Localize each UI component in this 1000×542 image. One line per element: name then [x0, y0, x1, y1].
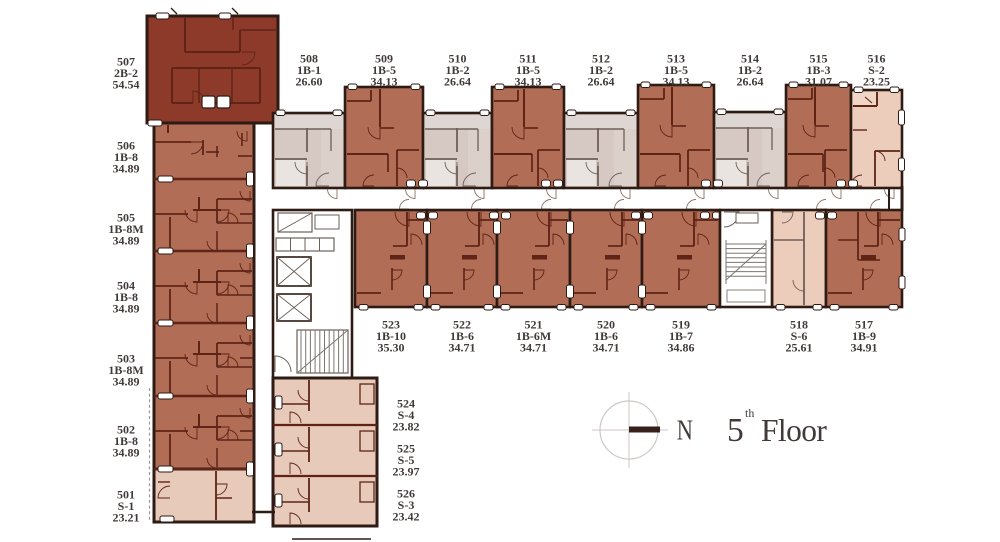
- svg-text:34.89: 34.89: [113, 162, 140, 176]
- svg-text:34.13: 34.13: [371, 75, 398, 89]
- svg-text:5: 5: [727, 412, 744, 449]
- svg-text:N: N: [677, 415, 693, 446]
- svg-text:31.07: 31.07: [805, 75, 832, 89]
- svg-text:23.97: 23.97: [393, 465, 420, 479]
- svg-text:23.25: 23.25: [863, 75, 890, 89]
- svg-text:35.30: 35.30: [378, 341, 405, 355]
- svg-text:34.89: 34.89: [113, 446, 140, 460]
- svg-text:34.13: 34.13: [663, 75, 690, 89]
- svg-text:34.86: 34.86: [668, 341, 695, 355]
- svg-text:26.64: 26.64: [737, 75, 764, 89]
- svg-text:26.60: 26.60: [296, 75, 323, 89]
- svg-text:34.71: 34.71: [449, 341, 476, 355]
- svg-text:23.82: 23.82: [393, 420, 420, 434]
- svg-text:Floor: Floor: [761, 413, 827, 448]
- svg-text:th: th: [745, 406, 754, 420]
- svg-text:54.54: 54.54: [113, 78, 140, 92]
- svg-text:34.71: 34.71: [520, 341, 547, 355]
- svg-text:34.13: 34.13: [515, 75, 542, 89]
- svg-text:34.71: 34.71: [593, 341, 620, 355]
- svg-text:34.89: 34.89: [113, 234, 140, 248]
- svg-text:26.64: 26.64: [444, 75, 471, 89]
- svg-text:25.61: 25.61: [786, 341, 813, 355]
- svg-text:34.89: 34.89: [113, 375, 140, 389]
- svg-text:23.21: 23.21: [113, 511, 140, 525]
- svg-text:34.89: 34.89: [113, 302, 140, 316]
- svg-text:26.64: 26.64: [588, 75, 615, 89]
- svg-text:23.42: 23.42: [393, 510, 420, 524]
- svg-text:34.91: 34.91: [851, 341, 878, 355]
